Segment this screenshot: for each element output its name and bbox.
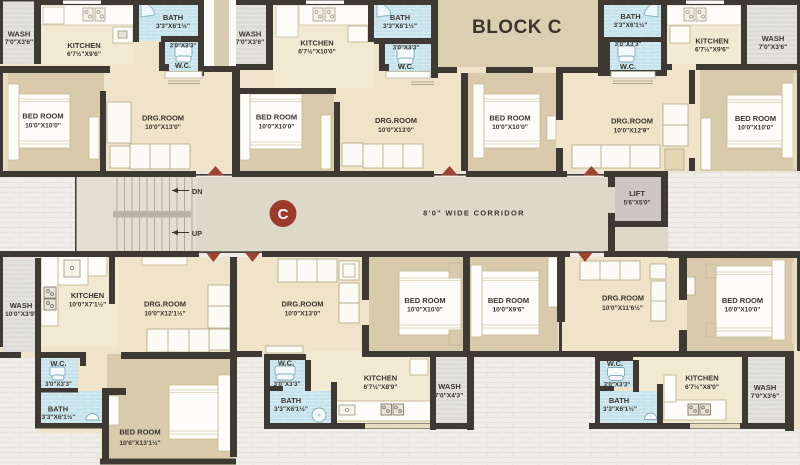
svg-text:3'0"X3'3": 3'0"X3'3" <box>393 45 420 52</box>
svg-text:10'0"X10'0": 10'0"X10'0" <box>407 307 443 314</box>
svg-text:8'0" WIDE CORRIDOR: 8'0" WIDE CORRIDOR <box>423 209 525 218</box>
svg-text:3'3"X6'1½": 3'3"X6'1½" <box>42 413 76 421</box>
svg-text:KITCHEN: KITCHEN <box>67 41 100 50</box>
svg-text:3'3"X6'1½": 3'3"X6'1½" <box>614 21 648 29</box>
svg-text:BED ROOM: BED ROOM <box>489 114 530 123</box>
svg-text:3'3"X6'1½": 3'3"X6'1½" <box>603 405 637 413</box>
svg-text:3'0"X3'3": 3'0"X3'3" <box>604 382 631 389</box>
svg-text:10'0"X3'9": 10'0"X3'9" <box>5 311 37 318</box>
svg-text:10'0"X10'0": 10'0"X10'0" <box>492 124 528 131</box>
svg-text:6'7½"X9'6": 6'7½"X9'6" <box>67 50 101 58</box>
svg-text:DRG.ROOM: DRG.ROOM <box>375 116 417 125</box>
svg-text:WASH: WASH <box>239 30 262 39</box>
svg-text:KITCHEN: KITCHEN <box>364 374 397 383</box>
svg-text:WASH: WASH <box>438 382 461 391</box>
svg-text:3'3"X6'1½": 3'3"X6'1½" <box>383 22 417 30</box>
svg-text:10'0"X13'0": 10'0"X13'0" <box>378 127 414 134</box>
svg-text:BATH: BATH <box>609 396 629 405</box>
svg-text:DRG.ROOM: DRG.ROOM <box>611 117 653 126</box>
svg-text:LIFT: LIFT <box>629 189 645 198</box>
svg-text:BED ROOM: BED ROOM <box>256 113 297 122</box>
svg-text:7'0"X3'6": 7'0"X3'6" <box>759 44 787 51</box>
svg-text:BATH: BATH <box>48 405 68 414</box>
svg-text:WASH: WASH <box>754 383 777 392</box>
svg-text:7'0"X4'3": 7'0"X4'3" <box>435 393 463 400</box>
svg-text:10'0"X10'0": 10'0"X10'0" <box>725 307 761 314</box>
svg-text:3'3"X6'1½": 3'3"X6'1½" <box>274 405 308 413</box>
svg-text:10'0"X12'1½": 10'0"X12'1½" <box>144 310 185 318</box>
svg-text:KITCHEN: KITCHEN <box>685 374 718 383</box>
svg-text:6'7½"X10'0": 6'7½"X10'0" <box>298 48 336 56</box>
svg-text:7'0"X3'6": 7'0"X3'6" <box>236 39 264 46</box>
svg-text:3'0"X3'3": 3'0"X3'3" <box>45 381 72 388</box>
svg-text:DRG.ROOM: DRG.ROOM <box>142 114 184 123</box>
svg-text:BED ROOM: BED ROOM <box>22 112 63 121</box>
svg-text:UP: UP <box>192 229 202 238</box>
svg-text:10'0"X13'0": 10'0"X13'0" <box>145 124 181 131</box>
svg-text:DRG.ROOM: DRG.ROOM <box>144 300 186 309</box>
svg-text:7'0"X3'6": 7'0"X3'6" <box>5 39 33 46</box>
svg-text:KITCHEN: KITCHEN <box>695 37 728 46</box>
svg-text:BED ROOM: BED ROOM <box>722 296 763 305</box>
svg-text:3'0"X3'3": 3'0"X3'3" <box>615 41 642 48</box>
svg-text:3'0"X3'3": 3'0"X3'3" <box>170 43 197 50</box>
svg-text:6'7½"X8'0": 6'7½"X8'0" <box>685 383 719 391</box>
svg-text:10'0"X11'6½": 10'0"X11'6½" <box>602 304 643 312</box>
svg-text:BATH: BATH <box>281 396 301 405</box>
svg-text:3'0"X3'3": 3'0"X3'3" <box>274 381 301 388</box>
svg-text:6'7½"X8'9": 6'7½"X8'9" <box>364 383 398 391</box>
svg-text:10'0"X12'9": 10'0"X12'9" <box>614 128 650 135</box>
svg-text:W.C.: W.C. <box>620 62 636 71</box>
svg-text:W.C.: W.C. <box>607 359 623 368</box>
svg-text:KITCHEN: KITCHEN <box>71 291 104 300</box>
svg-text:10'0"X7'1½": 10'0"X7'1½" <box>69 301 107 309</box>
svg-text:W.C.: W.C. <box>278 359 294 368</box>
svg-text:10'0"X10'0": 10'0"X10'0" <box>738 125 774 132</box>
svg-text:DN: DN <box>192 187 202 196</box>
svg-text:WASH: WASH <box>8 30 31 39</box>
svg-text:C: C <box>278 206 289 223</box>
svg-text:BATH: BATH <box>390 13 410 22</box>
svg-text:DRG.ROOM: DRG.ROOM <box>281 300 323 309</box>
svg-text:WASH: WASH <box>762 34 785 43</box>
svg-text:7'0"X3'6": 7'0"X3'6" <box>751 393 779 400</box>
svg-text:BATH: BATH <box>163 13 183 22</box>
svg-text:10'0"X10'0": 10'0"X10'0" <box>259 124 295 131</box>
svg-text:DRG.ROOM: DRG.ROOM <box>602 294 644 303</box>
svg-text:10'6"X13'1½": 10'6"X13'1½" <box>119 439 160 447</box>
svg-text:KITCHEN: KITCHEN <box>300 39 333 48</box>
svg-text:10'0"X13'0": 10'0"X13'0" <box>285 311 321 318</box>
svg-text:W.C.: W.C. <box>398 62 414 71</box>
svg-text:3'3"X6'1½": 3'3"X6'1½" <box>156 22 190 30</box>
svg-text:BED ROOM: BED ROOM <box>488 296 529 305</box>
svg-text:6'7½"X9'6": 6'7½"X9'6" <box>695 46 729 54</box>
svg-text:10'0"X10'0": 10'0"X10'0" <box>25 123 61 130</box>
svg-text:10'0"X9'6": 10'0"X9'6" <box>492 307 524 314</box>
svg-text:BLOCK C: BLOCK C <box>472 17 562 38</box>
svg-text:BATH: BATH <box>620 12 640 21</box>
svg-text:W.C.: W.C. <box>50 359 66 368</box>
svg-text:W.C.: W.C. <box>175 61 191 70</box>
svg-text:5'6"X5'0": 5'6"X5'0" <box>624 200 651 207</box>
svg-text:BED ROOM: BED ROOM <box>404 296 445 305</box>
svg-text:WASH: WASH <box>10 301 33 310</box>
svg-text:BED ROOM: BED ROOM <box>735 114 776 123</box>
svg-text:BED ROOM: BED ROOM <box>119 428 160 437</box>
